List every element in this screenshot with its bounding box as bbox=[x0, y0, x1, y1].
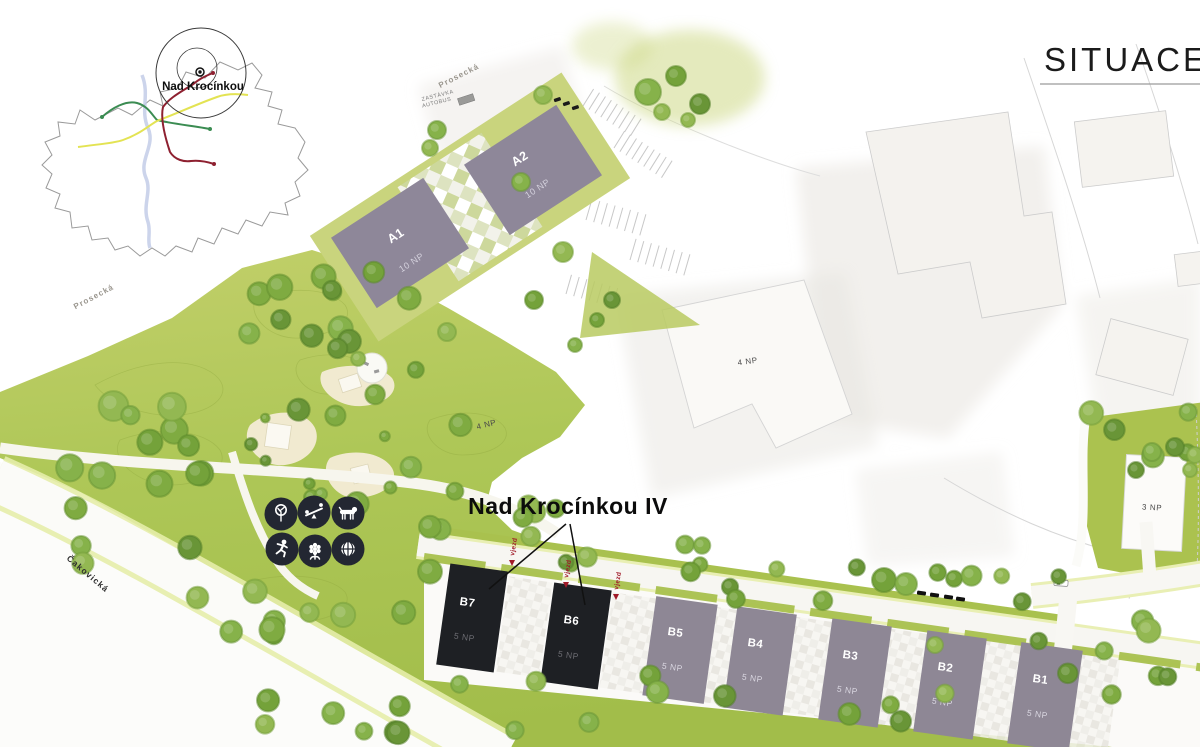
title-block: SITUACE bbox=[1040, 41, 1200, 84]
building-b7-label: B7 bbox=[459, 596, 476, 610]
running-icon bbox=[266, 533, 299, 566]
page-title: SITUACE bbox=[1044, 41, 1200, 78]
context-building bbox=[1174, 250, 1200, 287]
playground-seesaw-icon bbox=[298, 496, 331, 529]
tree-icon bbox=[265, 498, 298, 531]
building-b3-label: B3 bbox=[842, 649, 859, 663]
building-b4-label: B4 bbox=[747, 637, 764, 651]
building-b6-label: B6 bbox=[563, 614, 580, 628]
road-stub bbox=[1146, 522, 1150, 578]
building-b1-label: B1 bbox=[1032, 673, 1049, 687]
site-plan: B7 5 NP B6 5 NP B5 5 NP B4 5 NP B3 5 NP … bbox=[0, 0, 1200, 747]
overview-place-label: Nad Krocínkou bbox=[162, 81, 244, 93]
context-building bbox=[1074, 111, 1173, 188]
flower-icon bbox=[299, 535, 332, 568]
project-label: Nad Krocínkou IV bbox=[468, 493, 668, 519]
right-green-layer bbox=[1076, 402, 1200, 578]
context-3np-label: 3 NP bbox=[1142, 502, 1163, 512]
basketball-icon bbox=[332, 533, 365, 566]
building-b5-label: B5 bbox=[667, 626, 684, 640]
dog-icon bbox=[332, 497, 365, 530]
building-b2-label: B2 bbox=[937, 661, 954, 675]
